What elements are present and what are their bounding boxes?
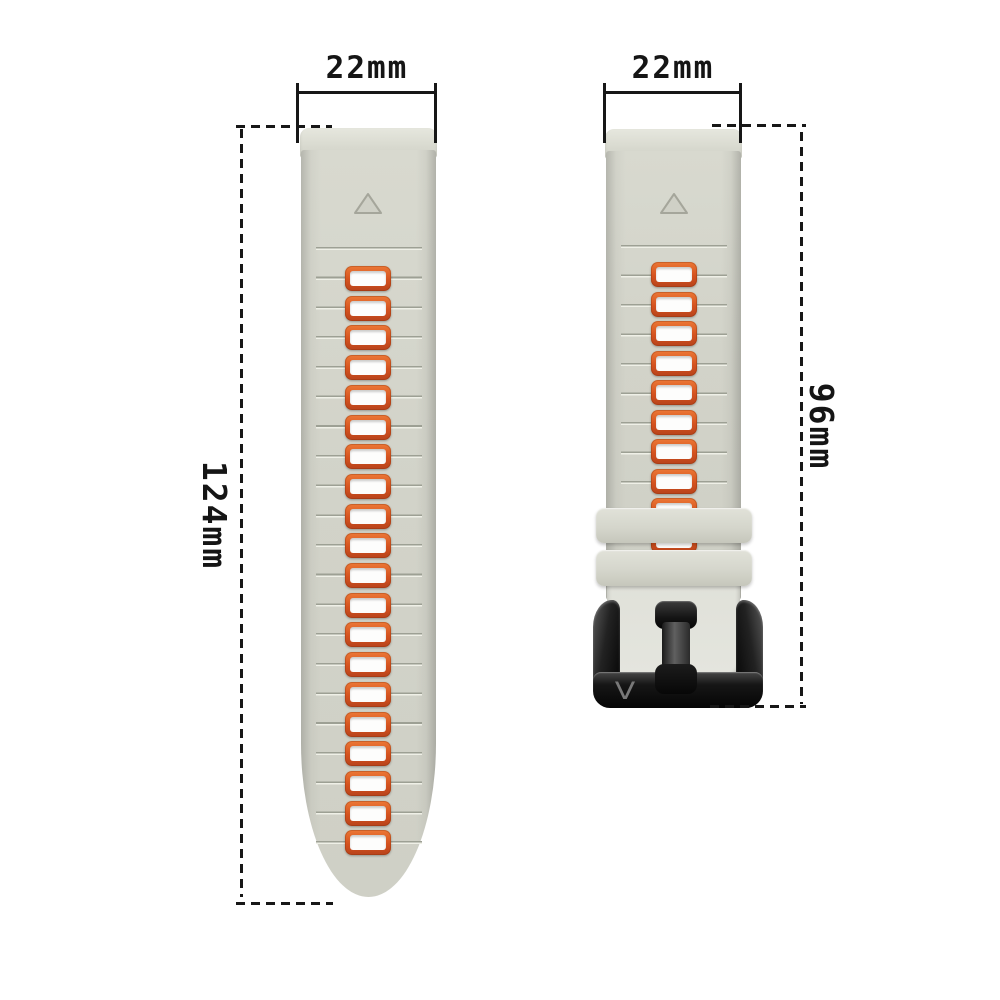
long-strap-bottom-extension-line — [236, 902, 333, 905]
strap-slot-hole — [651, 380, 697, 405]
strap-slot-hole — [345, 622, 391, 647]
strap-slot-hole — [651, 469, 697, 494]
buckle-tongue-tip — [655, 664, 697, 694]
long-strap-width-label: 22mm — [297, 50, 437, 86]
strap-slot-hole — [345, 741, 391, 766]
short-strap-width-right-tick — [739, 83, 742, 143]
strap-slot-hole — [345, 325, 391, 350]
strap-slot-hole — [345, 682, 391, 707]
long-strap-triangle-marker — [352, 191, 384, 217]
strap-slot-hole — [345, 296, 391, 321]
short-strap-length-dimension-line — [800, 132, 803, 704]
strap-slot-hole — [345, 385, 391, 410]
short-strap-width-label: 22mm — [603, 50, 743, 86]
strap-slot-hole — [651, 410, 697, 435]
strap-slot-hole — [345, 415, 391, 440]
strap-slot-hole — [345, 444, 391, 469]
long-strap-width-right-tick — [434, 83, 437, 143]
strap-slot-hole — [651, 262, 697, 287]
short-strap-width-left-tick — [603, 83, 606, 143]
long-strap-width-dimension-line — [298, 91, 437, 94]
strap-slot-hole — [345, 801, 391, 826]
strap-slot-hole — [345, 593, 391, 618]
long-strap-length-label: 124mm — [192, 438, 238, 593]
strap-slot-hole — [651, 292, 697, 317]
strap-slot-hole — [651, 439, 697, 464]
long-strap-length-dimension-line — [240, 129, 243, 897]
strap-slot-hole — [345, 266, 391, 291]
strap-slot-hole — [345, 712, 391, 737]
short-strap-length-label: 96mm — [799, 350, 845, 502]
long-strap-width-left-tick — [296, 83, 299, 143]
short-strap-width-dimension-line — [605, 91, 742, 94]
strap-slot-hole — [345, 830, 391, 855]
short-strap-top-extension-line — [712, 124, 806, 127]
strap-slot-hole — [345, 533, 391, 558]
strap-slot-hole — [651, 321, 697, 346]
long-strap-top-extension-line — [236, 125, 332, 128]
strap-slot-hole — [345, 474, 391, 499]
strap-slot-hole — [345, 771, 391, 796]
strap-slot-hole — [651, 351, 697, 376]
strap-slot-hole — [345, 652, 391, 677]
buckle-logo: V — [609, 679, 642, 703]
strap-slot-hole — [345, 563, 391, 588]
short-strap-bottom-extension-line — [710, 705, 806, 708]
strap-slot-hole — [345, 355, 391, 380]
short-strap-triangle-marker — [658, 191, 690, 217]
strap-keeper-loop-1 — [596, 508, 752, 543]
strap-slot-hole — [345, 504, 391, 529]
watch-band-dimension-diagram: 22mm 124mm 22mm 96mm V — [0, 0, 1000, 1000]
strap-keeper-loop-2 — [596, 550, 752, 586]
